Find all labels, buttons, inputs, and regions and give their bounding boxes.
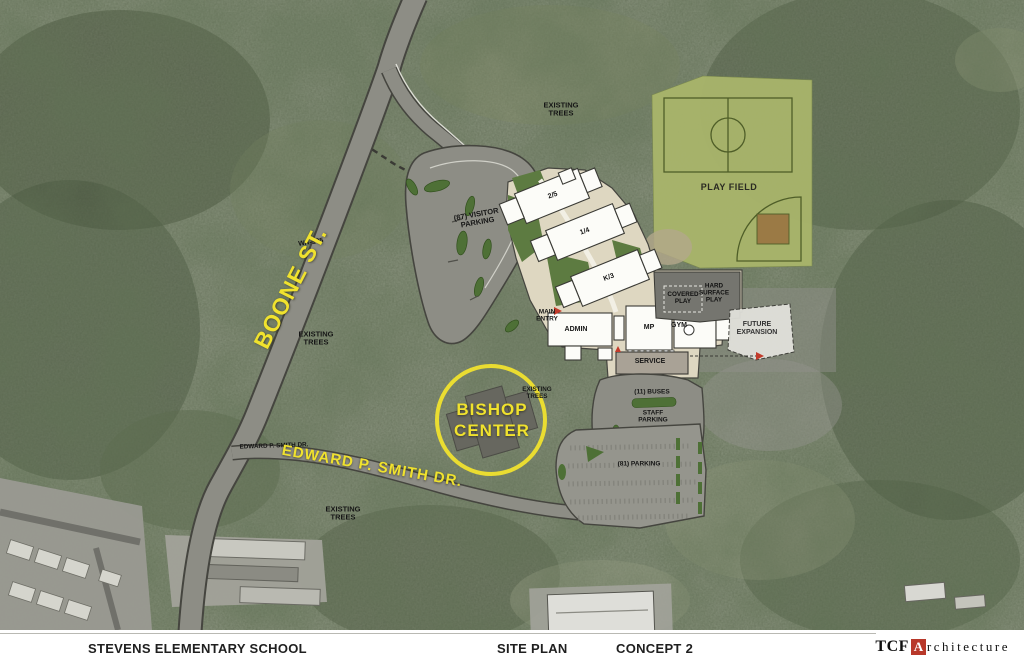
- label-future-expansion: FUTURE EXPANSION: [727, 321, 787, 337]
- site-plan-graphic: [0, 0, 1024, 630]
- label-mp: MP: [644, 324, 655, 332]
- label-existing-trees-left: EXISTING TREES: [293, 331, 339, 348]
- logo-tcf-text: TCF: [875, 638, 909, 656]
- forest-texture: [0, 0, 1024, 630]
- label-existing-trees-bottom: EXISTING TREES: [320, 506, 366, 523]
- label-existing-trees-circle: EXISTING TREES: [517, 386, 557, 400]
- label-staff-parking: STAFF PARKING: [633, 410, 673, 425]
- label-main-entry: MAIN ENTRY: [533, 309, 561, 324]
- cleared-zone-south: [698, 359, 842, 451]
- sheet-title: SITE PLAN: [497, 641, 568, 656]
- title-block: STEVENS ELEMENTARY SCHOOL SITE PLAN CONC…: [0, 630, 1024, 664]
- label-buses: (11) BUSES: [634, 388, 669, 395]
- aerial-site-plan: EXISTING TREES PLAY FIELD WA-105 BOONE S…: [0, 0, 1024, 630]
- label-play-field: PLAY FIELD: [701, 182, 758, 192]
- label-parking: (81) PARKING: [618, 460, 661, 467]
- label-admin: ADMIN: [565, 326, 588, 334]
- label-gym: GYM: [671, 322, 687, 330]
- main-parking-lot: [556, 424, 706, 528]
- tcf-architecture-logo: TCF A rchitecture: [875, 638, 1010, 656]
- label-service: SERVICE: [635, 358, 666, 366]
- label-bishop-center: BISHOP CENTER: [447, 399, 537, 442]
- concept-label: CONCEPT 2: [616, 641, 693, 656]
- play-field-area: [644, 76, 812, 268]
- logo-red-a-icon: A: [911, 639, 926, 655]
- label-existing-trees-top: EXISTING TREES: [537, 102, 585, 119]
- title-block-rule: [0, 633, 876, 634]
- label-hard-surface-play: HARD SURFACE PLAY: [691, 282, 737, 303]
- project-title: STEVENS ELEMENTARY SCHOOL: [88, 641, 307, 656]
- infield: [757, 214, 789, 244]
- logo-rchitecture-text: rchitecture: [927, 639, 1010, 655]
- site-plan-sheet: EXISTING TREES PLAY FIELD WA-105 BOONE S…: [0, 0, 1024, 664]
